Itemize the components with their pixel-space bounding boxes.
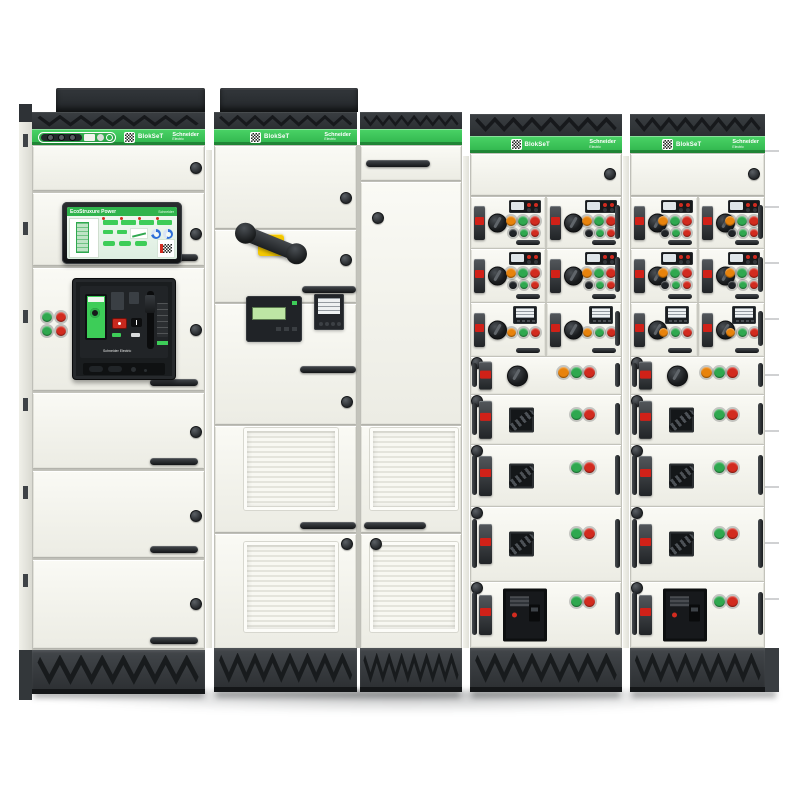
drawer-grip-vertical[interactable] — [758, 205, 763, 239]
door-grip[interactable] — [150, 458, 198, 465]
drawer-grip-vertical[interactable] — [758, 592, 763, 635]
mccb-window — [510, 596, 529, 606]
rotary-switch[interactable] — [564, 213, 583, 232]
drawer-handle[interactable] — [702, 313, 713, 347]
ventilation-grille — [244, 428, 338, 510]
acb-push-off-button[interactable] — [112, 318, 127, 329]
pushbutton-black[interactable] — [661, 229, 669, 237]
hmi-action-button[interactable] — [135, 241, 147, 246]
door-knob[interactable] — [190, 510, 202, 522]
pushbutton-green[interactable] — [714, 528, 725, 539]
drawer-handle[interactable] — [702, 259, 713, 293]
acb-racking-handle[interactable] — [145, 295, 155, 313]
hmi-label-tag — [103, 230, 113, 234]
drawer-handle[interactable] — [550, 206, 561, 240]
door-grip[interactable] — [366, 160, 430, 167]
drawer-grip[interactable] — [668, 294, 692, 299]
pushbutton-red[interactable] — [727, 528, 738, 539]
pushbutton-green[interactable] — [571, 596, 582, 607]
door-top[interactable] — [631, 154, 764, 195]
pushbutton-red[interactable] — [727, 367, 738, 378]
lever-switch[interactable] — [669, 532, 694, 557]
drawer-grip-vertical[interactable] — [472, 455, 477, 495]
hmi-status-tile[interactable] — [157, 220, 172, 225]
cabinet-2-metering: BlokSeT Schneider Electric — [214, 88, 462, 692]
drawer-grip-vertical[interactable] — [758, 403, 763, 435]
mccb-trip-button[interactable] — [672, 612, 677, 617]
drawer-grip-vertical[interactable] — [615, 257, 620, 292]
hmi-action-button[interactable] — [103, 241, 115, 246]
hmi-qr-code — [163, 244, 172, 253]
drawer-handle[interactable] — [639, 595, 652, 635]
lever-switch[interactable] — [509, 407, 534, 432]
pushbutton-red[interactable] — [584, 596, 595, 607]
drawer-grip-vertical[interactable] — [758, 455, 763, 495]
drawer-handle[interactable] — [634, 259, 645, 293]
drawer-grip[interactable] — [735, 294, 759, 299]
drawer-grip-vertical[interactable] — [615, 363, 620, 387]
drawer-row — [471, 357, 621, 394]
drawer-grip[interactable] — [516, 294, 540, 299]
meter-display — [732, 306, 756, 324]
rotary-switch[interactable] — [507, 365, 528, 386]
rotary-switch[interactable] — [488, 266, 507, 285]
drawer-grip-vertical[interactable] — [758, 311, 763, 346]
mccb-window — [670, 596, 689, 606]
mccb-toggle[interactable] — [529, 604, 540, 621]
hmi-title: EcoStruxure Power — [70, 209, 116, 215]
drawer-grip-vertical[interactable] — [472, 592, 477, 635]
control-unit-display — [728, 252, 760, 265]
drawer-unit — [547, 197, 621, 248]
top-vent-band-left — [214, 112, 357, 129]
pushbutton-orange[interactable] — [506, 268, 516, 278]
pushbutton-green[interactable] — [42, 326, 52, 336]
rotary-switch[interactable] — [564, 266, 583, 285]
qr-code-icon — [512, 140, 521, 149]
pushbutton-orange[interactable] — [701, 367, 712, 378]
pushbutton-red[interactable] — [727, 462, 738, 473]
door-grip[interactable] — [150, 546, 198, 553]
hmi-header: EcoStruxure Power Schneider — [67, 207, 177, 216]
acb-racking-strip — [83, 363, 165, 375]
door-knob[interactable] — [190, 598, 202, 610]
band-status-unit[interactable] — [38, 132, 116, 143]
pushbutton-red[interactable] — [56, 326, 66, 336]
door-grip[interactable] — [150, 379, 198, 386]
green-band-plain — [360, 129, 462, 145]
drawer-grip-vertical[interactable] — [615, 205, 620, 239]
pushbutton-orange[interactable] — [658, 216, 668, 226]
drawer-handle[interactable] — [479, 456, 492, 496]
hmi-brand-logo: Schneider — [158, 210, 174, 214]
pushbutton-green[interactable] — [595, 328, 604, 337]
drawer-grip[interactable] — [668, 240, 692, 245]
pushbutton-red[interactable] — [584, 528, 595, 539]
drawer-handle[interactable] — [634, 206, 645, 240]
pushbutton-green[interactable] — [739, 229, 747, 237]
drawer-handle[interactable] — [634, 313, 645, 347]
left-side-panel — [19, 104, 32, 700]
drawer-grip[interactable] — [516, 348, 540, 353]
pushbutton-green[interactable] — [672, 281, 680, 289]
mccb-trip-button[interactable] — [512, 612, 517, 617]
pushbutton-green[interactable] — [714, 462, 725, 473]
drawer-unit — [699, 197, 765, 248]
product-name: BlokSeT — [138, 134, 163, 140]
drawer-row — [631, 507, 764, 581]
pushbutton-red[interactable] — [727, 596, 738, 607]
pushbutton-red[interactable] — [530, 216, 540, 226]
drawer-grip-vertical[interactable] — [758, 363, 763, 387]
hmi-status-tile[interactable] — [103, 220, 118, 225]
pushbutton-red[interactable] — [683, 229, 691, 237]
pushbutton-green[interactable] — [594, 268, 604, 278]
pushbutton-green[interactable] — [596, 229, 604, 237]
pushbutton-green[interactable] — [520, 229, 528, 237]
pushbutton-green[interactable] — [672, 229, 680, 237]
pushbutton-green[interactable] — [42, 312, 52, 322]
schneider-logo: Schneider Electric — [589, 140, 616, 149]
lever-handle[interactable] — [508, 408, 536, 432]
pushbutton-black[interactable] — [509, 281, 517, 289]
drawer-row — [471, 249, 621, 302]
acb-brand-label: Schneider Electric — [103, 349, 131, 353]
drawer-stack — [471, 197, 621, 648]
schneider-logo: Schneider Electric — [172, 133, 199, 142]
drawer-handle[interactable] — [479, 595, 492, 635]
pushbutton-red[interactable] — [750, 229, 758, 237]
plinth — [630, 648, 765, 692]
door-knob[interactable] — [604, 168, 616, 180]
drawer-grip[interactable] — [592, 348, 616, 353]
product-name: BlokSeT — [525, 142, 550, 148]
right-side-panel-plinth-cap — [765, 648, 779, 692]
pushbutton-black[interactable] — [728, 229, 736, 237]
door-knob[interactable] — [341, 538, 353, 550]
drawer-grip-vertical[interactable] — [472, 403, 477, 435]
door-grip[interactable] — [300, 522, 356, 529]
molded-case-breaker[interactable] — [663, 588, 707, 641]
pushbutton-red[interactable] — [584, 409, 595, 420]
drawer-grip[interactable] — [592, 240, 616, 245]
door-4[interactable] — [33, 393, 204, 468]
pushbutton-red[interactable] — [727, 409, 738, 420]
drawer-unit — [471, 197, 545, 248]
pushbutton-orange[interactable] — [725, 216, 735, 226]
control-unit-display — [585, 252, 617, 265]
pushbutton-black[interactable] — [585, 281, 593, 289]
lever-switch[interactable] — [509, 463, 534, 488]
drawer-grip-vertical[interactable] — [615, 455, 620, 495]
drawer-grip-vertical[interactable] — [615, 311, 620, 346]
drawer-row — [631, 249, 764, 302]
drawer-handle[interactable] — [474, 206, 485, 240]
door-knob[interactable] — [748, 168, 760, 180]
drawer-unit — [547, 303, 621, 356]
drawer-grip-vertical[interactable] — [615, 403, 620, 435]
pushbutton-orange[interactable] — [506, 216, 516, 226]
drawer-grip-vertical[interactable] — [615, 519, 620, 568]
door-knob[interactable] — [340, 192, 352, 204]
single-line-diagram-card — [70, 219, 98, 257]
band-button-2[interactable] — [58, 134, 65, 141]
drawer-handle[interactable] — [479, 400, 492, 438]
drawer-row — [631, 582, 764, 647]
control-unit-display — [661, 252, 693, 265]
drawer-handle[interactable] — [479, 524, 492, 564]
drawer-grip[interactable] — [735, 348, 759, 353]
drawer-grip[interactable] — [735, 240, 759, 245]
drawer-handle[interactable] — [639, 400, 652, 438]
meter-display — [589, 306, 613, 324]
schneider-logo: Schneider Electric — [732, 140, 759, 149]
drawer-grip-vertical[interactable] — [615, 592, 620, 635]
pushbutton-green[interactable] — [737, 216, 747, 226]
drawer-grip-vertical[interactable] — [758, 257, 763, 292]
drawer-handle[interactable] — [474, 313, 485, 347]
hmi-gauge-1 — [151, 229, 161, 239]
pushbutton-orange[interactable] — [726, 328, 735, 337]
drawer-grip[interactable] — [592, 294, 616, 299]
pushbutton-green[interactable] — [670, 268, 680, 278]
drawer-grip-vertical[interactable] — [758, 519, 763, 568]
top-vent-band — [32, 112, 205, 129]
pushbutton-orange[interactable] — [582, 216, 592, 226]
ventilation-grille — [370, 428, 458, 510]
door-6[interactable] — [33, 560, 204, 648]
door-5[interactable] — [33, 471, 204, 557]
lever-switch[interactable] — [509, 532, 534, 557]
drawer-handle[interactable] — [550, 313, 561, 347]
pushbutton-green[interactable] — [594, 216, 604, 226]
lever-handle[interactable] — [668, 464, 696, 488]
left-side-panel-plinth-cap — [19, 650, 32, 700]
pushbutton-green[interactable] — [670, 216, 680, 226]
pushbutton-orange[interactable] — [658, 268, 668, 278]
cabinet-gap-3 — [623, 156, 629, 648]
hmi-trend-chart — [131, 229, 147, 238]
control-unit-display — [661, 200, 693, 213]
lever-switch[interactable] — [669, 463, 694, 488]
door-knob[interactable] — [631, 507, 643, 519]
pushbutton-red[interactable] — [56, 312, 66, 322]
cabinet-3-mcc: BlokSeT Schneider Electric — [470, 114, 622, 692]
drawer-row — [471, 582, 621, 647]
drawer-handle[interactable] — [479, 361, 492, 390]
pushbutton-green[interactable] — [737, 268, 747, 278]
pushbutton-green[interactable] — [571, 528, 582, 539]
hmi-touchscreen[interactable]: EcoStruxure Power Schneider — [62, 202, 182, 264]
left-side-panel-top-cap — [19, 104, 32, 122]
pushbutton-green[interactable] — [520, 281, 528, 289]
door-grip[interactable] — [150, 637, 198, 644]
door-top[interactable] — [33, 146, 204, 190]
meter-display — [665, 306, 689, 324]
door-knob[interactable] — [372, 212, 384, 224]
pushbutton-green[interactable] — [671, 328, 680, 337]
right-side-panel — [765, 150, 779, 648]
pushbutton-green[interactable] — [714, 596, 725, 607]
drawer-grip-vertical[interactable] — [472, 363, 477, 387]
drawer-handle[interactable] — [474, 259, 485, 293]
pushbutton-orange[interactable] — [659, 328, 668, 337]
rotary-switch[interactable] — [564, 320, 583, 339]
pushbutton-black[interactable] — [585, 229, 593, 237]
pushbutton-red[interactable] — [750, 281, 758, 289]
drawer-handle[interactable] — [639, 361, 652, 390]
single-line-diagram — [76, 222, 89, 253]
drawer-grip-vertical[interactable] — [632, 592, 637, 635]
busbar-duct — [220, 88, 358, 112]
hmi-status-tile[interactable] — [139, 220, 154, 225]
pushbutton-red[interactable] — [531, 281, 539, 289]
pushbutton-red[interactable] — [584, 367, 595, 378]
air-circuit-breaker[interactable]: Schneider Electric — [72, 278, 176, 380]
top-vent-band — [470, 114, 622, 136]
door-grip[interactable] — [302, 286, 356, 293]
band-button-3[interactable] — [69, 134, 76, 141]
pushbutton-orange[interactable] — [507, 328, 516, 337]
door-knob[interactable] — [370, 538, 382, 550]
schneider-logo: Schneider Electric — [324, 133, 351, 142]
drawer-handle[interactable] — [550, 259, 561, 293]
pushbutton-green[interactable] — [596, 281, 604, 289]
pushbutton-green[interactable] — [519, 328, 528, 337]
drawer-grip-vertical[interactable] — [472, 519, 477, 568]
ventilation-grille — [370, 542, 458, 632]
pushbutton-black[interactable] — [728, 281, 736, 289]
rotary-switch[interactable] — [667, 365, 688, 386]
pushbutton-green[interactable] — [739, 281, 747, 289]
drawer-unit — [471, 303, 545, 356]
acb-control-unit[interactable] — [85, 294, 107, 340]
band-indicator-on — [106, 134, 113, 141]
door-knob[interactable] — [190, 162, 202, 174]
drawer-row — [631, 395, 764, 444]
switchboard-scene: BlokSeT Schneider Electric Eco — [0, 0, 800, 800]
pushbutton-green[interactable] — [714, 367, 725, 378]
pushbutton-red[interactable] — [607, 281, 615, 289]
drawer-handle[interactable] — [702, 206, 713, 240]
lever-handle[interactable] — [668, 408, 696, 432]
pushbutton-red[interactable] — [530, 268, 540, 278]
pushbutton-orange[interactable] — [725, 268, 735, 278]
pushbutton-black[interactable] — [509, 229, 517, 237]
acb-window — [111, 292, 124, 310]
control-unit-display — [728, 200, 760, 213]
green-brand-band: BlokSeT Schneider Electric — [470, 136, 622, 153]
pushbutton-green[interactable] — [571, 367, 582, 378]
control-unit-display — [585, 200, 617, 213]
molded-case-breaker[interactable] — [503, 588, 547, 641]
pushbutton-orange[interactable] — [582, 268, 592, 278]
drawer-grip[interactable] — [516, 240, 540, 245]
drawer-stack — [631, 197, 764, 648]
pushbutton-red[interactable] — [683, 281, 691, 289]
drawer-row — [471, 395, 621, 444]
pushbutton-red[interactable] — [682, 268, 692, 278]
door-top[interactable] — [471, 154, 621, 195]
door-knob[interactable] — [190, 426, 202, 438]
hmi-status-tile[interactable] — [121, 220, 136, 225]
drawer-grip-vertical[interactable] — [632, 363, 637, 387]
hmi-action-button[interactable] — [119, 241, 131, 246]
door-knob[interactable] — [471, 507, 483, 519]
plinth — [32, 650, 205, 694]
cabinet-4-mcc: BlokSeT Schneider Electric — [630, 114, 779, 692]
pushbutton-red[interactable] — [682, 216, 692, 226]
lever-handle[interactable] — [508, 464, 536, 488]
door-knob[interactable] — [340, 254, 352, 266]
pushbutton-red[interactable] — [531, 229, 539, 237]
rotary-switch[interactable] — [488, 213, 507, 232]
lever-switch[interactable] — [669, 407, 694, 432]
pushbutton-black[interactable] — [661, 281, 669, 289]
drawer-handle[interactable] — [639, 456, 652, 496]
door-knob[interactable] — [190, 228, 202, 240]
pushbutton-red[interactable] — [531, 328, 540, 337]
control-unit-display — [509, 200, 541, 213]
drawer-grip-vertical[interactable] — [632, 455, 637, 495]
pushbutton-green[interactable] — [571, 462, 582, 473]
pushbutton-green[interactable] — [518, 268, 528, 278]
lever-handle[interactable] — [668, 532, 696, 556]
power-meter-small[interactable] — [314, 294, 344, 330]
drawer-row — [471, 507, 621, 581]
pushbutton-orange[interactable] — [558, 367, 569, 378]
door-knob[interactable] — [341, 396, 353, 408]
drawer-grip-vertical[interactable] — [632, 519, 637, 568]
band-button-1[interactable] — [47, 134, 54, 141]
drawer-unit — [631, 197, 697, 248]
pushbutton-orange[interactable] — [583, 328, 592, 337]
drawer-row — [631, 357, 764, 394]
power-meter-large[interactable] — [246, 296, 302, 342]
acb-green-tag — [157, 341, 168, 345]
lever-handle[interactable] — [508, 532, 536, 556]
plinth-right — [360, 648, 462, 692]
door-grip[interactable] — [364, 522, 426, 529]
drawer-handle[interactable] — [639, 524, 652, 564]
door-L1[interactable] — [215, 146, 356, 228]
product-name: BlokSeT — [676, 142, 701, 148]
acb-push-on-button[interactable] — [131, 318, 142, 327]
drawer-grip[interactable] — [668, 348, 692, 353]
door-grip[interactable] — [300, 366, 356, 373]
pushbutton-red[interactable] — [607, 229, 615, 237]
ventilation-grille — [244, 542, 338, 632]
pushbutton-green[interactable] — [738, 328, 747, 337]
drawer-row — [471, 303, 621, 356]
qr-code-icon — [125, 133, 134, 142]
hinge-cutouts — [23, 134, 28, 644]
incomer-pushbutton-cluster — [42, 312, 66, 336]
pushbutton-green[interactable] — [518, 216, 528, 226]
drawer-unit — [631, 249, 697, 302]
qr-code-icon — [251, 133, 260, 142]
green-brand-band: BlokSeT Schneider Electric — [32, 129, 205, 145]
drawer-row — [631, 303, 764, 356]
mccb-toggle[interactable] — [689, 604, 700, 621]
pushbutton-red[interactable] — [584, 462, 595, 473]
rotary-switch[interactable] — [488, 320, 507, 339]
drawer-grip-vertical[interactable] — [632, 403, 637, 435]
pushbutton-green[interactable] — [571, 409, 582, 420]
pushbutton-red[interactable] — [683, 328, 692, 337]
door-knob[interactable] — [190, 324, 202, 336]
pushbutton-green[interactable] — [714, 409, 725, 420]
